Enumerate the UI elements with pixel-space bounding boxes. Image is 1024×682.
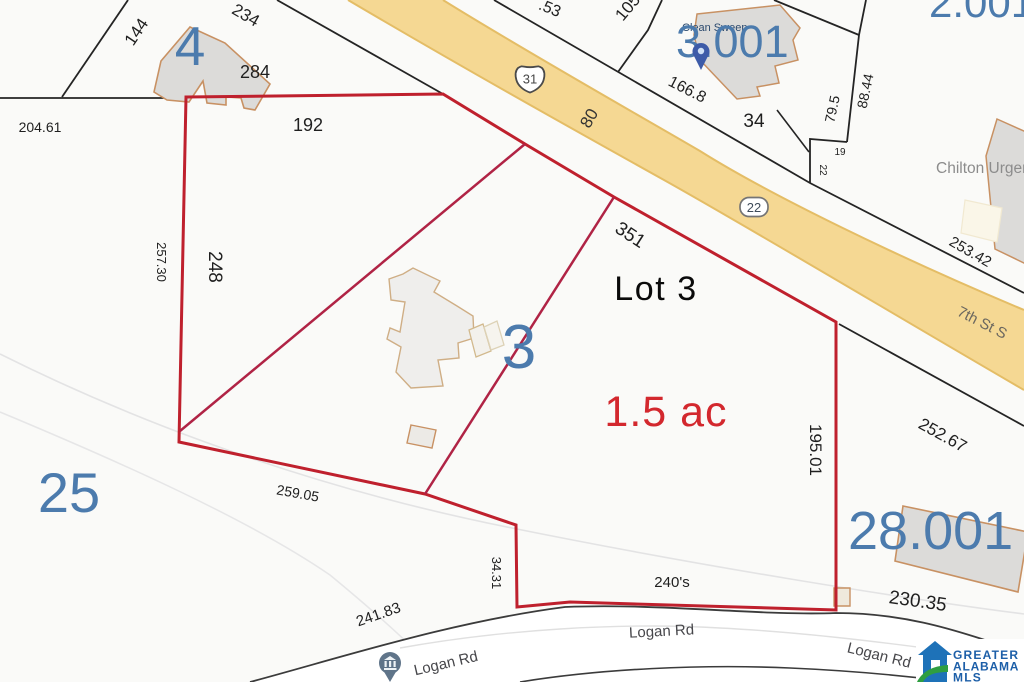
svg-text:204.61: 204.61 bbox=[19, 119, 62, 135]
svg-text:31: 31 bbox=[523, 72, 537, 87]
svg-text:34: 34 bbox=[743, 111, 765, 132]
svg-text:195.01: 195.01 bbox=[806, 424, 825, 476]
svg-text:248: 248 bbox=[204, 251, 225, 283]
svg-text:28.001: 28.001 bbox=[848, 501, 1013, 561]
svg-text:240's: 240's bbox=[654, 574, 689, 591]
svg-text:MLS: MLS bbox=[953, 671, 982, 682]
svg-text:Chilton Urgent: Chilton Urgent bbox=[936, 160, 1024, 177]
svg-text:3.001: 3.001 bbox=[676, 16, 789, 67]
svg-text:34.31: 34.31 bbox=[489, 557, 504, 590]
svg-text:3: 3 bbox=[502, 313, 536, 382]
svg-text:192: 192 bbox=[293, 115, 323, 135]
svg-text:25: 25 bbox=[38, 461, 100, 524]
svg-text:1.5 ac: 1.5 ac bbox=[604, 388, 727, 436]
svg-text:22: 22 bbox=[747, 200, 761, 215]
svg-text:Lot 3: Lot 3 bbox=[614, 270, 698, 308]
svg-text:22: 22 bbox=[817, 164, 828, 176]
svg-text:19: 19 bbox=[834, 147, 846, 158]
svg-text:284: 284 bbox=[240, 62, 270, 82]
svg-text:257.30: 257.30 bbox=[154, 242, 169, 282]
svg-text:4: 4 bbox=[175, 15, 206, 77]
svg-text:2.001: 2.001 bbox=[929, 0, 1024, 26]
svg-text:Logan Rd: Logan Rd bbox=[629, 621, 695, 641]
